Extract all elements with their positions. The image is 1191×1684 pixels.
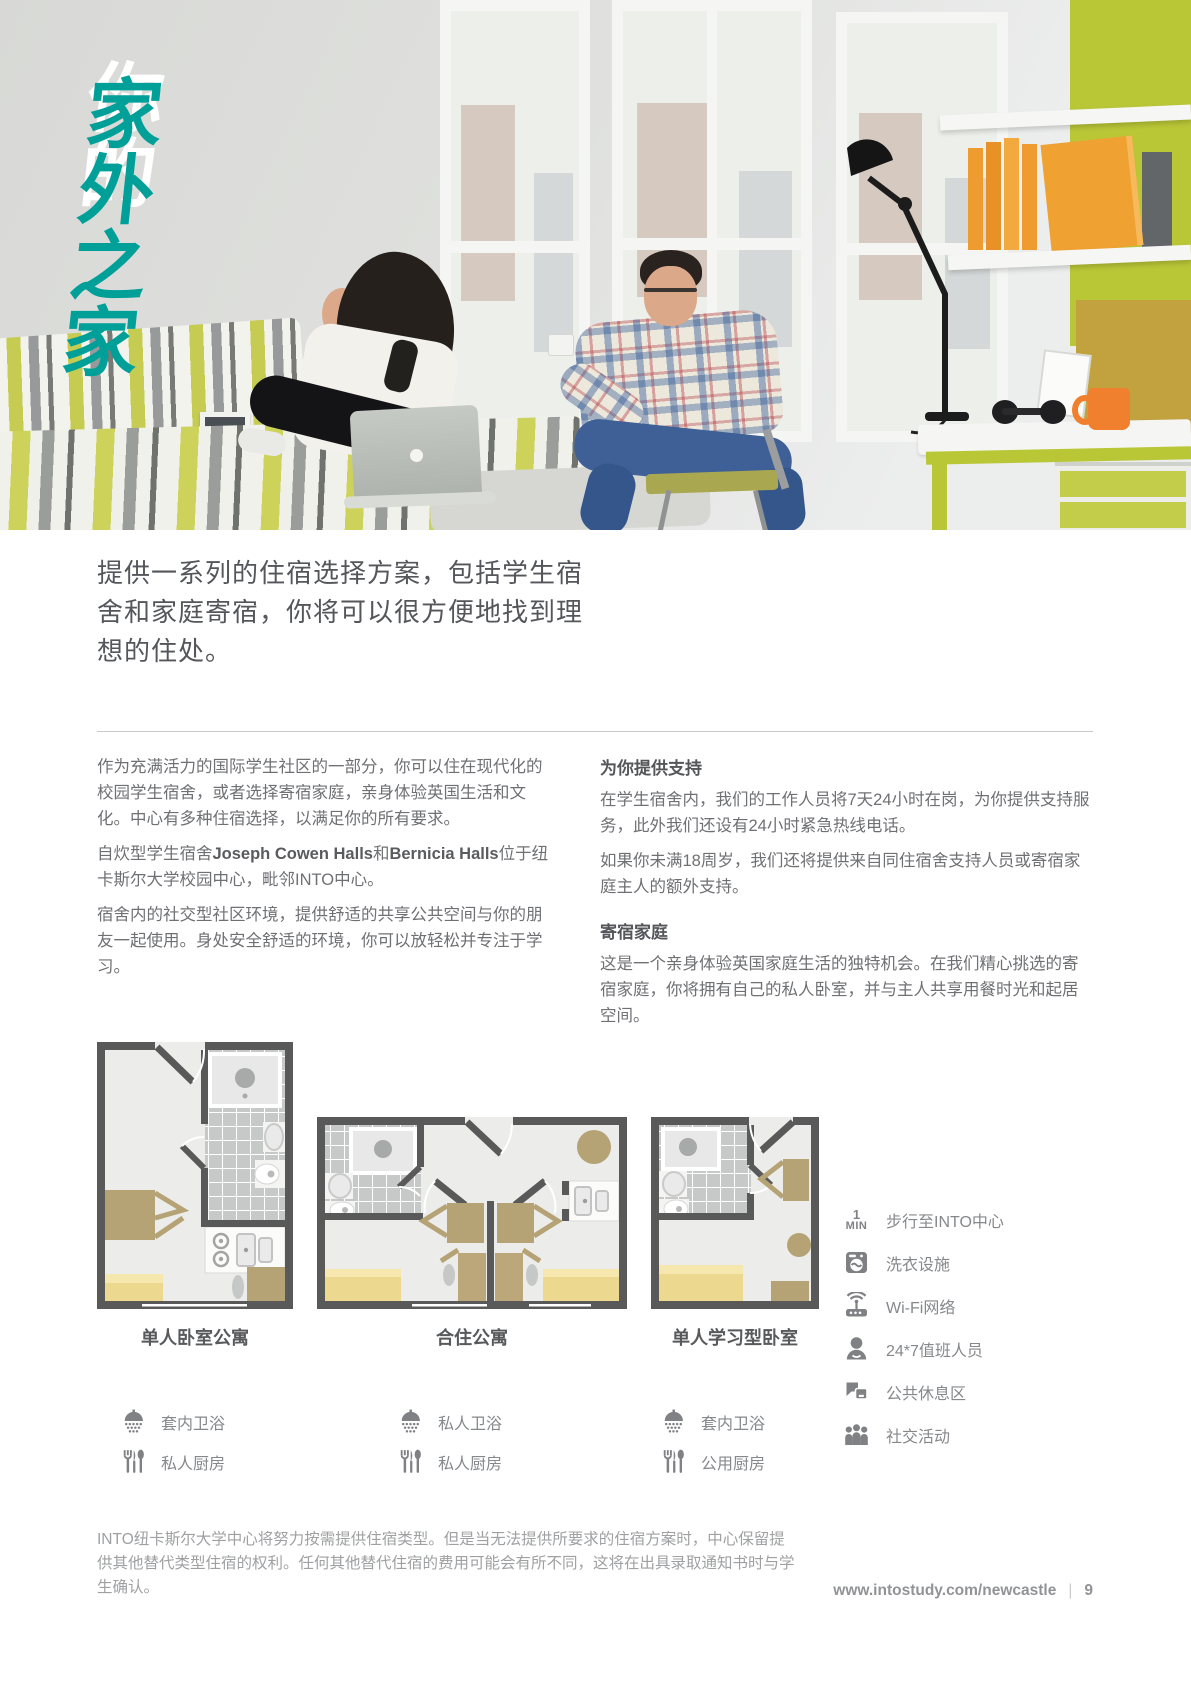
amenity-laundry: 洗衣设施 bbox=[843, 1249, 1093, 1276]
body-columns: 作为充满活力的国际学生社区的一部分，你可以住在现代化的校园学生宿舍，或者选择寄宿… bbox=[97, 754, 1093, 1038]
amenity-label: 社交活动 bbox=[886, 1423, 950, 1447]
floorplans-section: 单人卧室公寓 套内卫浴 私人厨房 bbox=[97, 1042, 1093, 1488]
amenity-social: 社交活动 bbox=[843, 1421, 1093, 1448]
shower-icon bbox=[397, 1408, 424, 1435]
kitchen-icon bbox=[120, 1448, 147, 1475]
social-icon bbox=[843, 1421, 870, 1448]
amenity-staff: 24*7值班人员 bbox=[843, 1335, 1093, 1362]
desk-lamp-icon bbox=[845, 82, 995, 442]
shower-icon bbox=[120, 1408, 147, 1435]
footer-url[interactable]: www.intostudy.com/newcastle bbox=[833, 1582, 1056, 1599]
paragraph: 自炊型学生宿舍Joseph Cowen Halls和Bernicia Halls… bbox=[97, 841, 552, 893]
amenity-label: 洗衣设施 bbox=[886, 1251, 950, 1275]
feature-label: 私人厨房 bbox=[161, 1450, 225, 1474]
power-socket bbox=[548, 334, 574, 356]
staff-icon bbox=[843, 1335, 870, 1362]
man-glasses bbox=[644, 288, 697, 292]
page-number: 9 bbox=[1084, 1582, 1093, 1599]
binders-row bbox=[968, 128, 1191, 250]
amenity-lounge: 公共休息区 bbox=[843, 1378, 1093, 1405]
intro-paragraph: 提供一系列的住宿选择方案，包括学生宿舍和家庭寄宿，你将可以很方便地找到理想的住处… bbox=[97, 554, 607, 671]
desk-leg bbox=[932, 460, 947, 530]
wifi-icon bbox=[843, 1292, 870, 1319]
right-column: 为你提供支持 在学生宿舍内，我们的工作人员将7天24小时在岗，为你提供支持服务，… bbox=[600, 754, 1093, 1038]
floorplan-study-bedroom: 单人学习型卧室 套内卫浴 公用厨房 bbox=[651, 1117, 819, 1488]
amenities-list: 1 MIN 步行至INTO中心 洗衣设施 Wi-Fi网络 24*7值班人员 bbox=[843, 1206, 1093, 1488]
plan-label-shared: 合住公寓 bbox=[317, 1324, 627, 1350]
bottom-row: INTO纽卡斯尔大学中心将努力按需提供住宿类型。但是当无法提供所要求的住宿方案时… bbox=[97, 1528, 1093, 1600]
feature-label: 私人卫浴 bbox=[438, 1410, 502, 1434]
feature-label: 套内卫浴 bbox=[161, 1410, 225, 1434]
plan-features: 套内卫浴 公用厨房 bbox=[660, 1408, 810, 1475]
feature-label: 私人厨房 bbox=[438, 1450, 502, 1474]
floorplan-shared: 合住公寓 私人卫浴 私人厨房 bbox=[317, 1117, 627, 1488]
desk-drawers bbox=[1055, 462, 1191, 530]
page-footer: www.intostudy.com/newcastle|9 bbox=[833, 1582, 1093, 1600]
support-heading: 为你提供支持 bbox=[600, 754, 1093, 779]
laundry-icon bbox=[843, 1249, 870, 1276]
amenity-wifi: Wi-Fi网络 bbox=[843, 1292, 1093, 1319]
headphones bbox=[992, 400, 1066, 424]
kitchen-icon bbox=[397, 1448, 424, 1475]
laptop bbox=[350, 405, 483, 506]
plan-features: 私人卫浴 私人厨房 bbox=[397, 1408, 547, 1475]
paragraph: 如果你未满18周岁，我们还将提供来自同住宿舍支持人员或寄宿家庭主人的额外支持。 bbox=[600, 848, 1093, 900]
homestay-heading: 寄宿家庭 bbox=[600, 918, 1093, 943]
disclaimer-text: INTO纽卡斯尔大学中心将努力按需提供住宿类型。但是当无法提供所要求的住宿方案时… bbox=[97, 1528, 797, 1600]
amenity-label: 步行至INTO中心 bbox=[886, 1208, 1004, 1232]
feature-label: 套内卫浴 bbox=[701, 1410, 765, 1434]
kitchen-icon bbox=[660, 1448, 687, 1475]
plan-label-studio: 单人卧室公寓 bbox=[97, 1324, 293, 1350]
plan-label-study-bedroom: 单人学习型卧室 bbox=[651, 1324, 819, 1350]
amenity-label: 24*7值班人员 bbox=[886, 1337, 983, 1361]
left-column: 作为充满活力的国际学生社区的一部分，你可以住在现代化的校园学生宿舍，或者选择寄宿… bbox=[97, 754, 552, 1038]
walk-time-icon: 1 MIN bbox=[843, 1208, 870, 1232]
plan-features: 套内卫浴 私人厨房 bbox=[120, 1408, 270, 1475]
brochure-page: 你的 家外之家 提供一系列的住宿选择方案，包括学生宿舍和家庭寄宿，你将可以很方便… bbox=[0, 0, 1191, 1684]
lounge-icon bbox=[843, 1378, 870, 1405]
paragraph: 宿舍内的社交型社区环境，提供舒适的共享公共空间与你的朋友一起使用。身处安全舒适的… bbox=[97, 902, 552, 980]
shower-icon bbox=[660, 1408, 687, 1435]
amenity-label: Wi-Fi网络 bbox=[886, 1294, 955, 1318]
man-face bbox=[644, 266, 697, 326]
footer-separator: | bbox=[1056, 1582, 1084, 1599]
paragraph: 作为充满活力的国际学生社区的一部分，你可以住在现代化的校园学生宿舍，或者选择寄宿… bbox=[97, 754, 552, 832]
feature-label: 公用厨房 bbox=[701, 1450, 765, 1474]
section-divider bbox=[97, 731, 1093, 732]
paragraph: 这是一个亲身体验英国家庭生活的独特机会。在我们精心挑选的寄宿家庭，你将拥有自己的… bbox=[600, 951, 1093, 1029]
apple-logo-icon bbox=[410, 449, 424, 463]
amenity-label: 公共休息区 bbox=[886, 1380, 966, 1404]
amenity-walk: 1 MIN 步行至INTO中心 bbox=[843, 1206, 1093, 1233]
paragraph: 在学生宿舍内，我们的工作人员将7天24小时在岗，为你提供支持服务，此外我们还设有… bbox=[600, 787, 1093, 839]
orange-mug bbox=[1088, 388, 1130, 430]
floorplan-studio: 单人卧室公寓 套内卫浴 私人厨房 bbox=[97, 1042, 293, 1488]
hero-photo: 你的 家外之家 bbox=[0, 0, 1191, 530]
